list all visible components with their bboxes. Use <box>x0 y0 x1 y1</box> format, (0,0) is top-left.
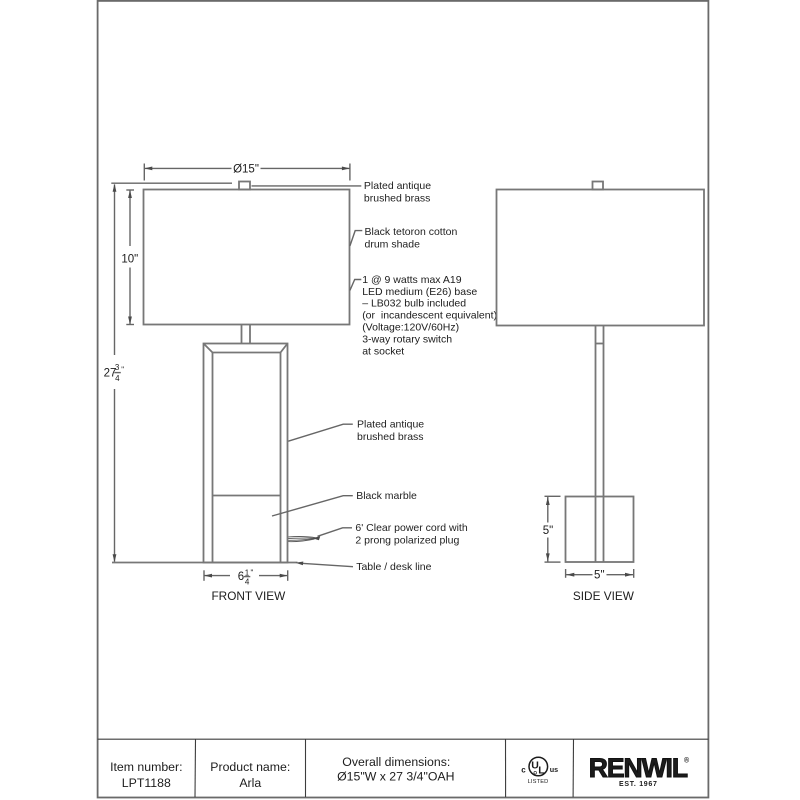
svg-text:RENWIL: RENWIL <box>589 753 688 783</box>
svg-text:EST. 1967: EST. 1967 <box>619 781 658 788</box>
svg-text:5": 5" <box>594 570 604 582</box>
svg-text:c: c <box>521 765 526 774</box>
svg-text:Item number:: Item number: <box>110 760 182 774</box>
svg-text:Plated antique: Plated antique <box>357 418 424 430</box>
svg-text:Table / desk line: Table / desk line <box>356 561 431 573</box>
svg-text:(or incandescent equivalent): (or incandescent equivalent) <box>362 310 497 322</box>
svg-text:drum shade: drum shade <box>365 238 421 250</box>
svg-text:SIDE VIEW: SIDE VIEW <box>573 589 635 603</box>
svg-text:us: us <box>550 765 558 774</box>
svg-text:L: L <box>538 765 545 777</box>
svg-text:10": 10" <box>121 253 138 265</box>
svg-text:(Voltage:120V/60Hz): (Voltage:120V/60Hz) <box>362 322 459 334</box>
svg-text:4: 4 <box>245 577 250 586</box>
svg-text:LISTED: LISTED <box>528 779 549 785</box>
svg-text:5": 5" <box>543 525 553 537</box>
svg-text:– LB032 bulb included: – LB032 bulb included <box>362 298 466 310</box>
svg-text:2 prong polarized plug: 2 prong polarized plug <box>355 534 459 546</box>
svg-text:1 @ 9 watts max A19: 1 @ 9 watts max A19 <box>362 274 462 286</box>
svg-text:Product name:: Product name: <box>210 760 290 774</box>
svg-text:LED medium (E26) base: LED medium (E26) base <box>362 286 477 298</box>
svg-text:3: 3 <box>115 363 120 372</box>
svg-text:at socket: at socket <box>362 345 404 357</box>
svg-text:Arla: Arla <box>239 776 261 790</box>
svg-text:brushed brass: brushed brass <box>364 193 431 205</box>
svg-text:®: ® <box>684 757 690 765</box>
svg-text:Black marble: Black marble <box>356 490 417 502</box>
svg-text:brushed brass: brushed brass <box>357 431 424 443</box>
svg-text:Ø15": Ø15" <box>233 164 259 176</box>
svg-text:LPT1188: LPT1188 <box>122 776 171 790</box>
svg-text:Plated antique: Plated antique <box>364 180 431 192</box>
svg-text:Black tetoron cotton: Black tetoron cotton <box>365 226 458 238</box>
svg-text:6' Clear power cord with: 6' Clear power cord with <box>355 522 467 534</box>
svg-text:Overall dimensions:: Overall dimensions: <box>342 755 450 769</box>
svg-text:6: 6 <box>238 571 244 583</box>
svg-text:": " <box>121 365 124 374</box>
svg-text:FRONT VIEW: FRONT VIEW <box>211 589 286 603</box>
svg-text:": " <box>251 568 254 577</box>
svg-text:3-way rotary switch: 3-way rotary switch <box>362 333 452 345</box>
svg-text:4: 4 <box>115 374 120 383</box>
svg-text:Ø15"W x 27 3/4"OAH: Ø15"W x 27 3/4"OAH <box>337 770 454 784</box>
